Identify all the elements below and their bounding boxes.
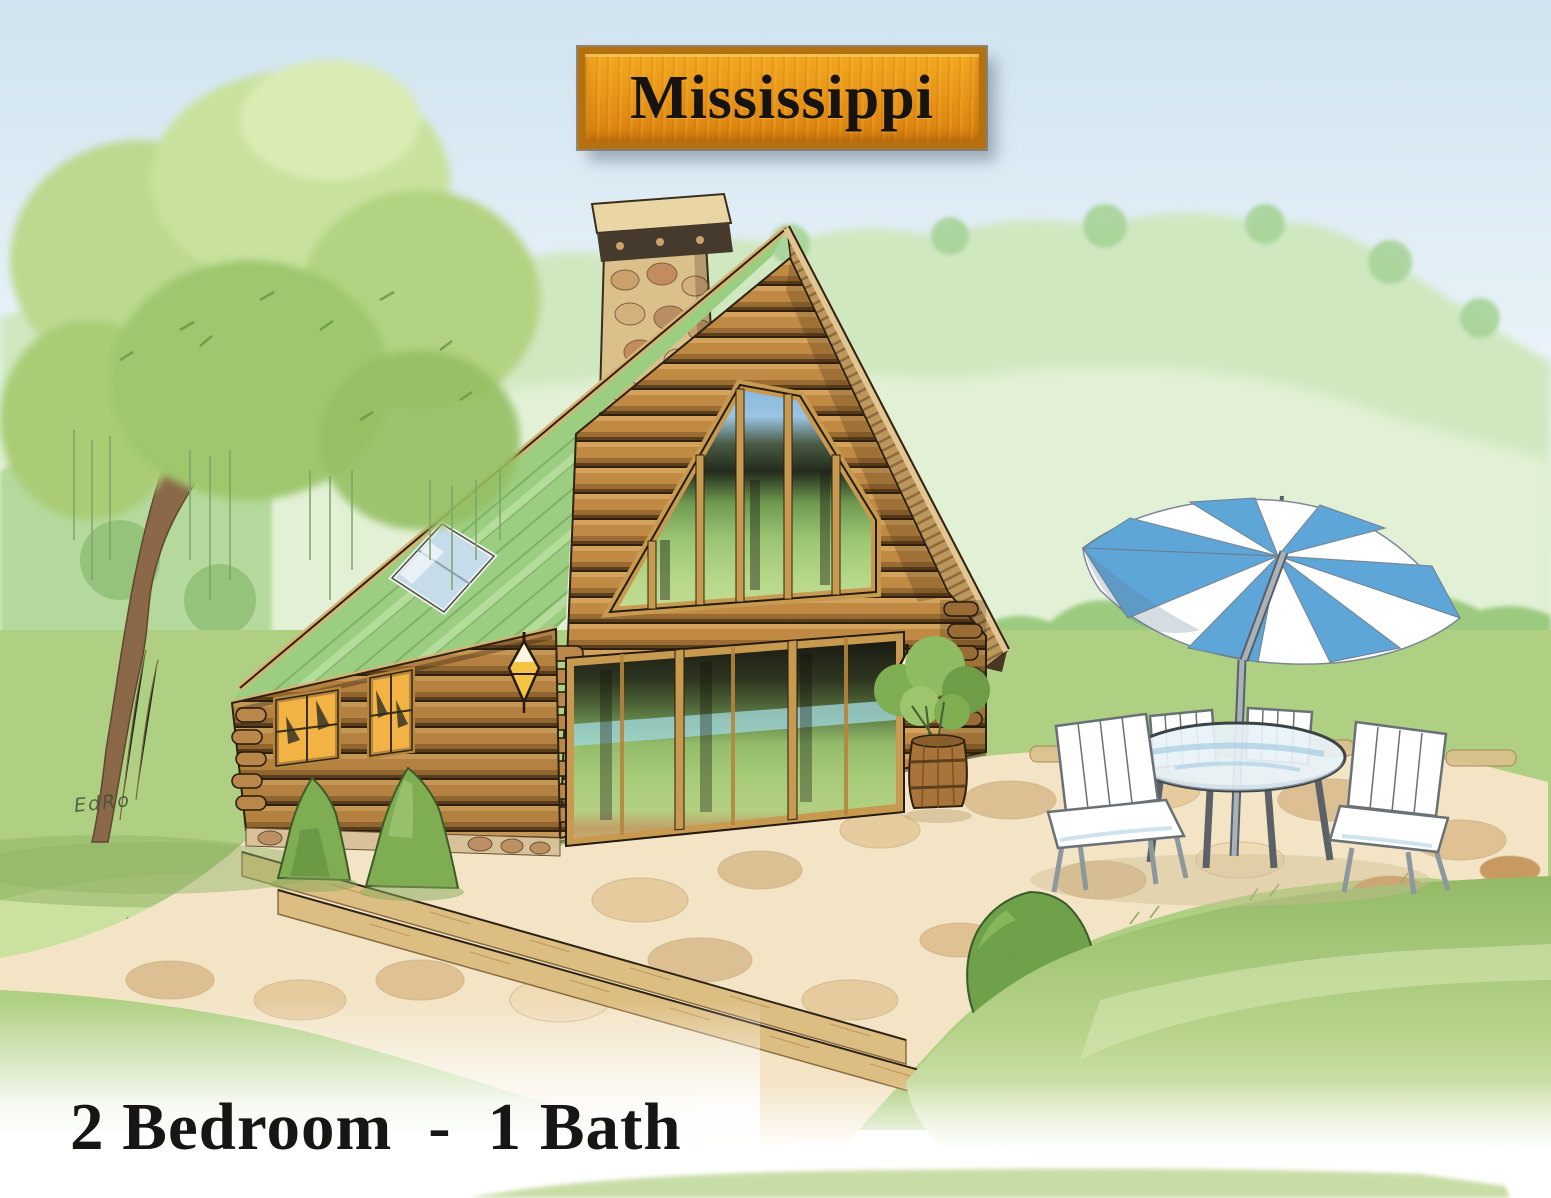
patio-doors (566, 632, 904, 846)
title-plate: Mississippi (578, 47, 986, 149)
caption: 2 Bedroom - 1 Bath (70, 1094, 682, 1161)
caption-bedrooms: 2 Bedroom (70, 1094, 392, 1161)
catalog-page: Mississippi 2 Bedroom - 1 Bath EdRo (0, 0, 1551, 1198)
cabin-illustration (0, 0, 1551, 1198)
plan-name: Mississippi (630, 67, 934, 129)
caption-separator: - (428, 1094, 451, 1161)
caption-baths: 1 Bath (488, 1094, 682, 1161)
